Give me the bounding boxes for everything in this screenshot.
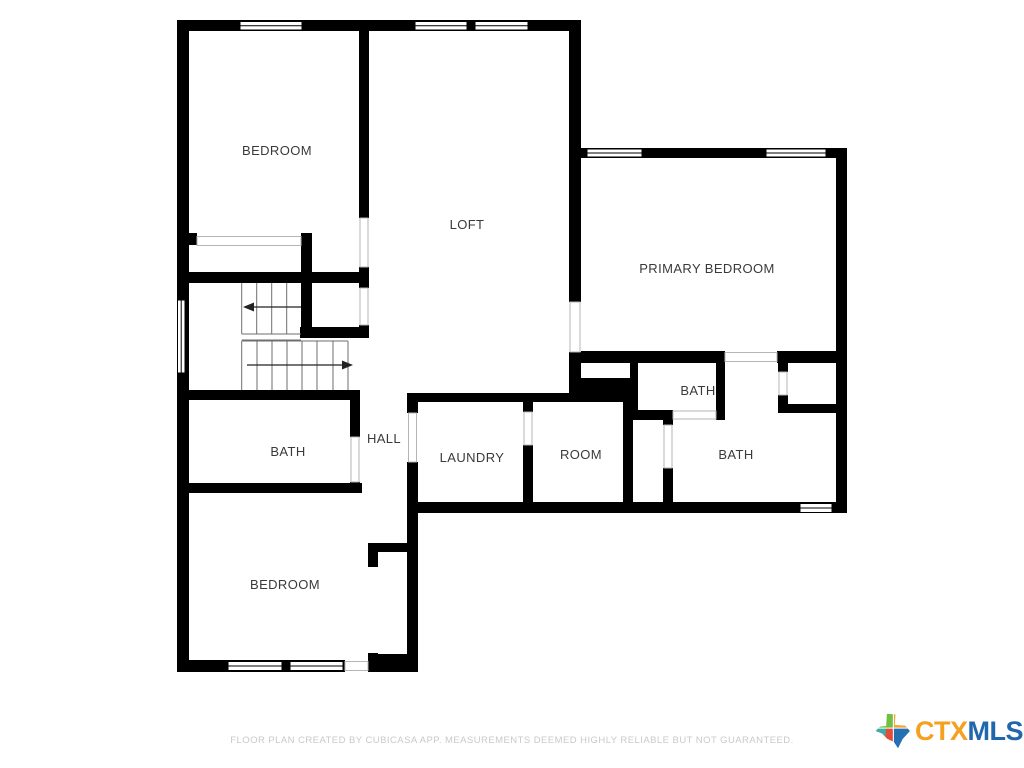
wall (663, 468, 673, 513)
wall (359, 20, 369, 218)
window (240, 22, 302, 31)
wall (350, 390, 360, 437)
room-label-hall: HALL (367, 431, 401, 446)
door-opening (673, 411, 716, 419)
room-label-bedroom-top-left: BEDROOM (242, 143, 312, 158)
room-label-room: ROOM (560, 447, 602, 462)
wall (777, 351, 836, 363)
door-opening (524, 412, 532, 445)
window (766, 149, 826, 157)
wall (523, 445, 533, 512)
wall (183, 390, 360, 400)
wall (836, 148, 847, 513)
door-opening (664, 425, 672, 468)
room-label-bedroom-bottom: BEDROOM (250, 577, 320, 592)
stair-arrow-right-icon (247, 361, 353, 370)
floor-plan-canvas: BEDROOM LOFT PRIMARY BEDROOM BATH BATH R… (0, 0, 1024, 768)
wall (569, 26, 581, 302)
window (475, 22, 528, 31)
room-label-laundry: LAUNDRY (440, 450, 505, 465)
door-opening (360, 218, 368, 267)
door-opening (345, 662, 368, 671)
wall (523, 393, 533, 412)
door-opening (725, 353, 777, 362)
logo-mls-text: MLS (968, 716, 1024, 746)
wall (778, 395, 788, 404)
wall (716, 361, 725, 420)
window (415, 22, 467, 31)
walls (177, 20, 847, 672)
room-label-bath-small-primary: BATH (680, 383, 715, 398)
wall (301, 233, 312, 338)
door-opening (570, 302, 580, 352)
wall (189, 233, 197, 245)
door-opening (360, 288, 368, 325)
window (290, 662, 343, 671)
wall (407, 462, 418, 672)
room-label-primary-bedroom: PRIMARY BEDROOM (639, 261, 775, 276)
window (228, 662, 282, 671)
logo-ctx-text: CTX (915, 716, 968, 746)
wall (581, 351, 725, 363)
room-label-loft: LOFT (450, 217, 485, 232)
wall (407, 393, 633, 402)
ctxmls-logo: CTXMLS (874, 711, 1023, 751)
window (587, 149, 642, 157)
room-label-bath-primary: BATH (718, 447, 753, 462)
door-opening (351, 437, 359, 482)
wall (778, 404, 836, 413)
wall (177, 483, 362, 493)
door-opening (409, 413, 417, 462)
wall (368, 543, 378, 567)
door-opening (779, 372, 787, 395)
wall (177, 272, 368, 283)
door-opening (197, 237, 301, 246)
texas-state-icon (874, 713, 912, 749)
logo-wordmark: CTXMLS (915, 711, 1023, 751)
window (178, 300, 186, 373)
room-label-bath-left: BATH (270, 444, 305, 459)
wall (663, 410, 673, 425)
wall (368, 653, 378, 672)
window (800, 504, 832, 513)
wall (778, 363, 788, 372)
windows (178, 22, 833, 671)
footer-disclaimer: FLOOR PLAN CREATED BY CUBICASA APP. MEAS… (0, 735, 1024, 746)
